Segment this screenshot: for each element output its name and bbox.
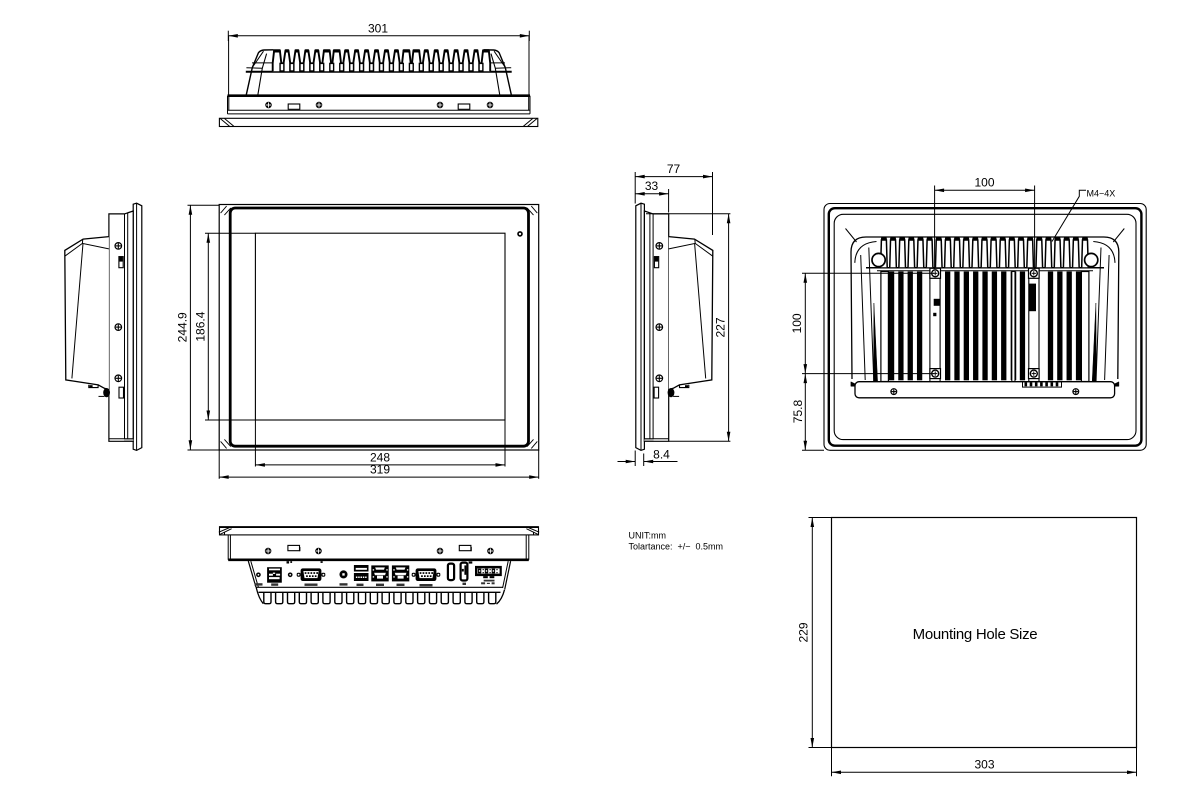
svg-text:301: 301 (368, 21, 388, 35)
svg-text:227: 227 (713, 317, 727, 337)
svg-text:75.8: 75.8 (791, 399, 805, 423)
svg-text:M4−4X: M4−4X (1087, 189, 1116, 199)
svg-text:229: 229 (797, 622, 811, 642)
svg-text:UNIT:mm: UNIT:mm (629, 531, 667, 541)
svg-text:77: 77 (667, 162, 681, 176)
svg-text:319: 319 (370, 463, 390, 477)
svg-text:8.4: 8.4 (653, 447, 670, 461)
svg-text:Mounting Hole Size: Mounting Hole Size (913, 626, 1038, 643)
svg-text:Tolartance: +/− 0.5mm: Tolartance: +/− 0.5mm (629, 542, 724, 552)
svg-text:100: 100 (790, 313, 804, 333)
svg-text:244.9: 244.9 (175, 312, 189, 342)
svg-text:186.4: 186.4 (193, 311, 207, 341)
svg-text:33: 33 (645, 179, 659, 193)
svg-text:100: 100 (974, 176, 994, 190)
svg-text:303: 303 (974, 758, 994, 772)
